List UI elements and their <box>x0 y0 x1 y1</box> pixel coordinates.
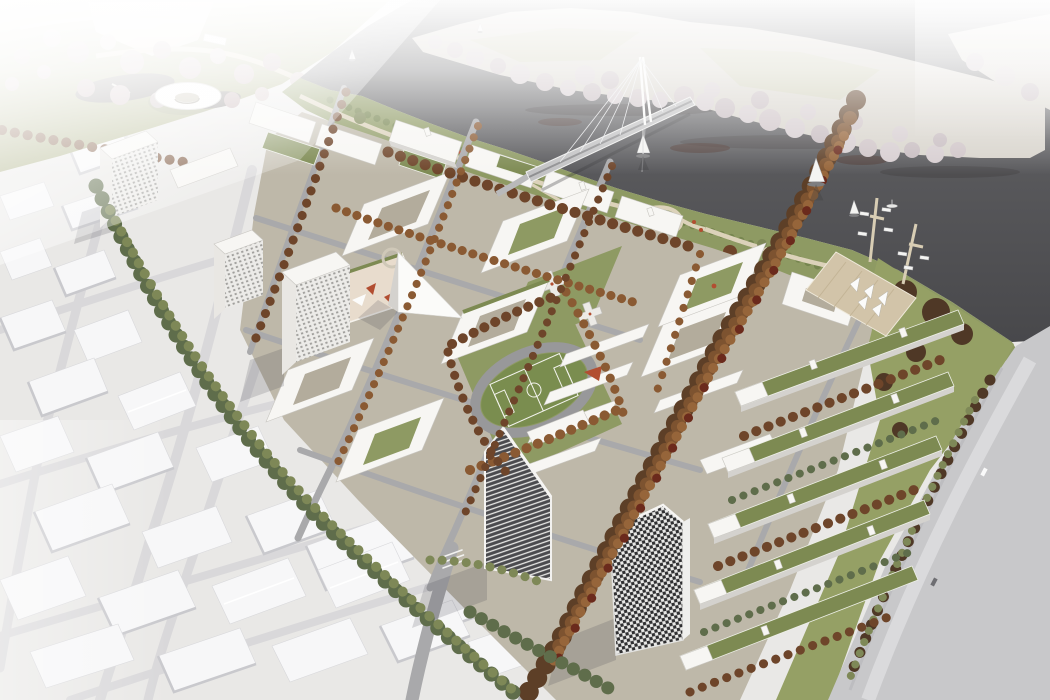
rendering-canvas <box>0 0 1050 700</box>
masterplan-aerial-render <box>0 0 1050 700</box>
